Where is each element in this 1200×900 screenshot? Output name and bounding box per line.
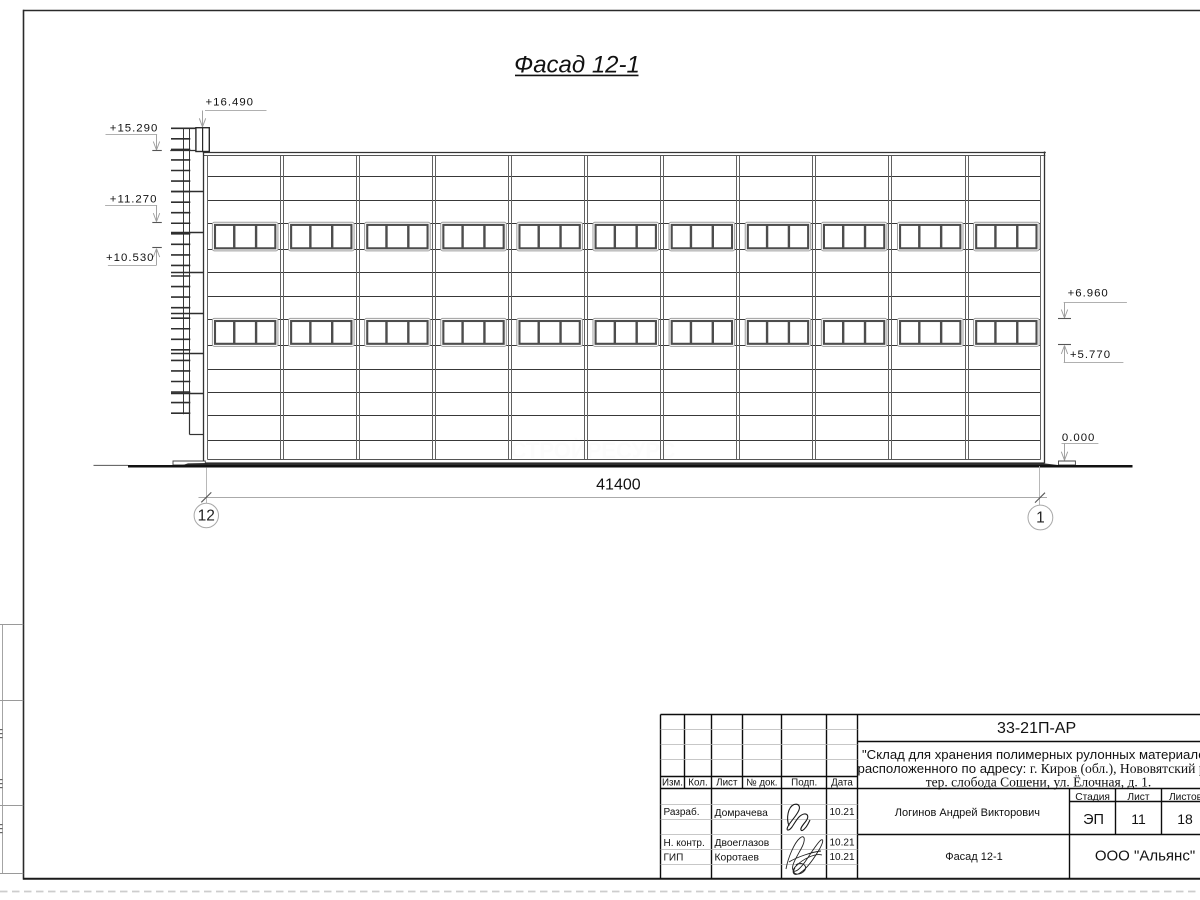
svg-text:Разраб.: Разраб. [664, 806, 700, 818]
svg-text:+16.490: +16.490 [206, 97, 255, 109]
svg-text:Дата: Дата [831, 778, 853, 789]
svg-text:Изм.: Изм. [662, 778, 683, 789]
svg-text:+6.960: +6.960 [1068, 288, 1109, 300]
svg-text:Стадия: Стадия [1075, 792, 1110, 803]
svg-text:+11.270: +11.270 [110, 194, 158, 206]
svg-text:тер. слобода Сошени, ул. Ёлочн: тер. слобода Сошени, ул. Ёлочная, д. 1. [926, 774, 1151, 789]
svg-text:10.21: 10.21 [829, 837, 854, 848]
svg-text:Фасад 12-1: Фасад 12-1 [945, 851, 1003, 863]
svg-text:Кол.: Кол. [688, 778, 707, 789]
svg-text:Лист: Лист [716, 778, 738, 789]
svg-text:Домрачева: Домрачева [715, 808, 769, 819]
svg-text:ГИП: ГИП [664, 853, 684, 864]
svg-text:Двоеглазов: Двоеглазов [715, 838, 770, 849]
svg-text:33-21П-АР: 33-21П-АР [997, 720, 1076, 737]
svg-text:ООО "Альянс": ООО "Альянс" [1095, 847, 1195, 864]
svg-text:Подп.: Подп. [791, 778, 817, 789]
svg-text:Логинов Андрей Викторович: Логинов Андрей Викторович [895, 807, 1040, 819]
svg-text:+5.770: +5.770 [1070, 349, 1111, 361]
svg-text:12: 12 [198, 508, 215, 525]
svg-text:1: 1 [1036, 510, 1045, 527]
svg-text:11: 11 [1131, 811, 1146, 827]
svg-text:Листов: Листов [1169, 792, 1200, 803]
svg-text:ЭП: ЭП [1083, 812, 1104, 828]
svg-text:0.000: 0.000 [1062, 432, 1096, 444]
svg-text:Лист: Лист [1127, 792, 1149, 803]
svg-text:41400: 41400 [596, 477, 641, 494]
svg-text:18: 18 [1177, 811, 1193, 827]
svg-text:"Склад для хранения полимерных: "Склад для хранения полимерных рулонных … [862, 747, 1200, 762]
svg-text:+15.290: +15.290 [110, 123, 159, 135]
svg-text:Н. контр.: Н. контр. [664, 838, 705, 849]
svg-text:Коротаев: Коротаев [715, 853, 760, 864]
svg-text:№ док.: № док. [746, 778, 777, 789]
svg-text:10.21: 10.21 [829, 807, 854, 818]
svg-text:+10.530: +10.530 [106, 252, 155, 264]
svg-text:Фасад 12-1: Фасад 12-1 [514, 51, 640, 78]
svg-text:10.21: 10.21 [829, 852, 854, 863]
